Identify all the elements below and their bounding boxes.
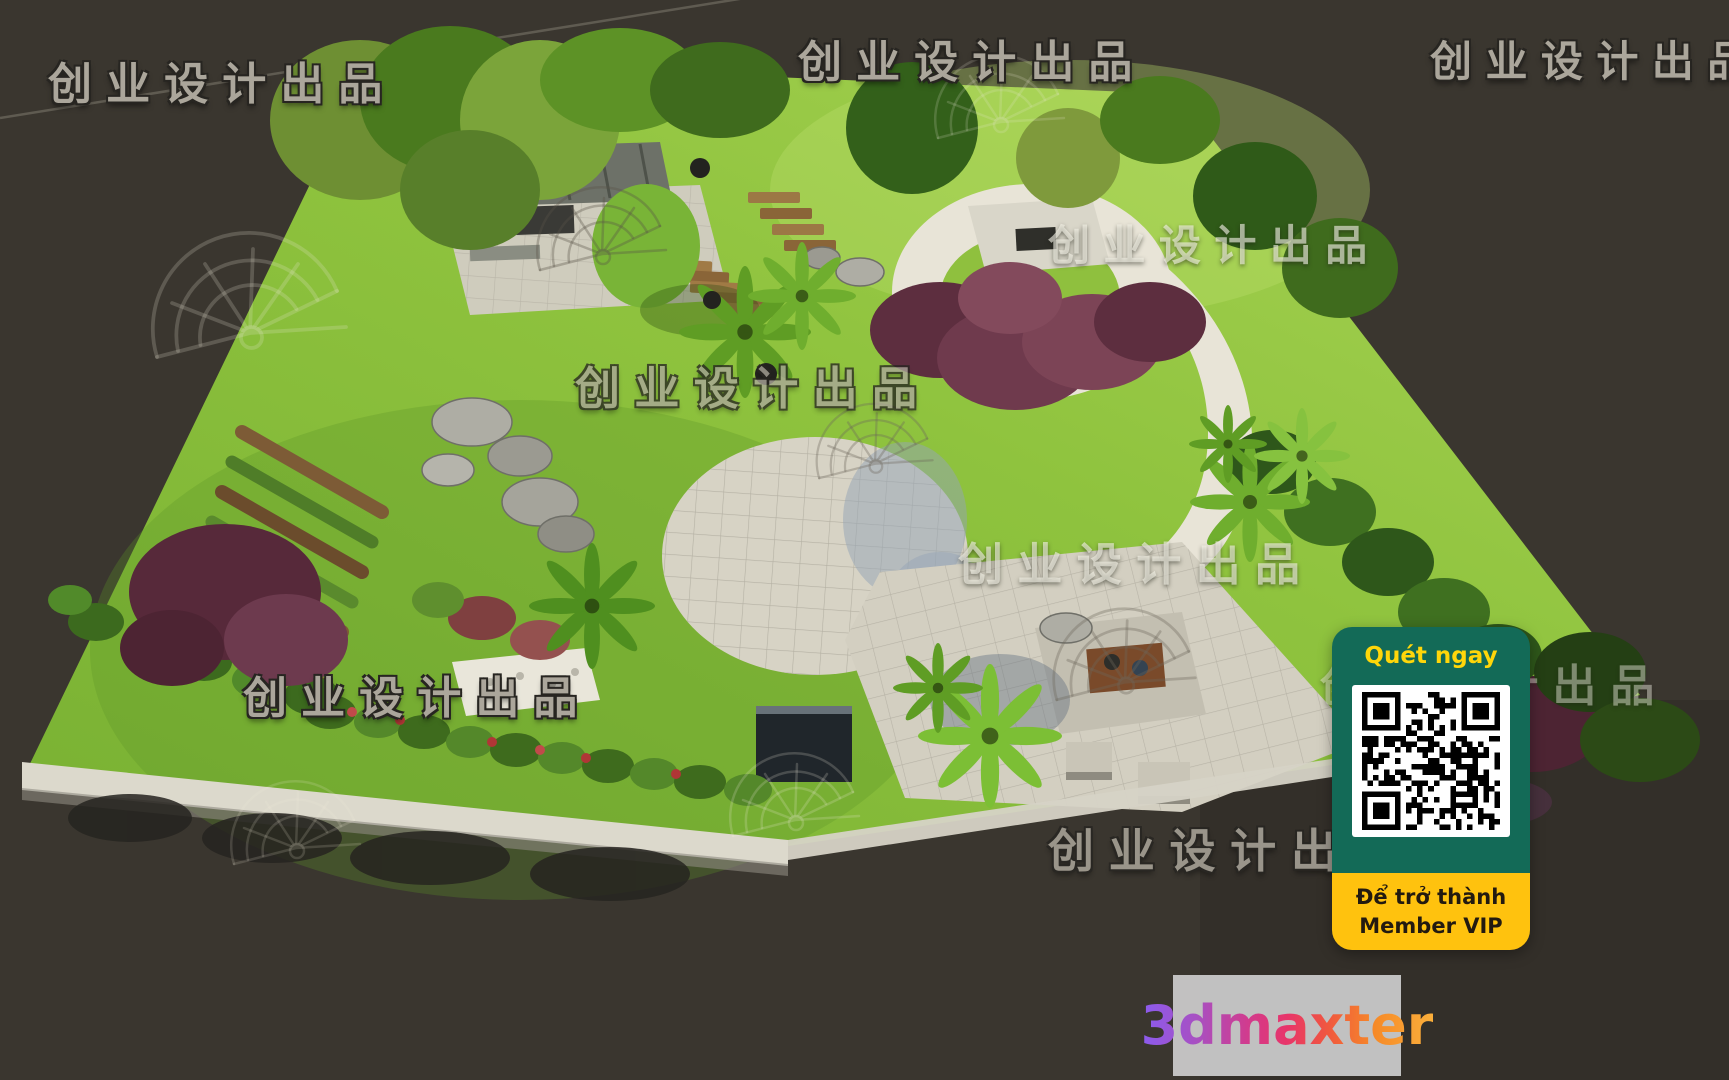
qr-code — [1352, 685, 1510, 837]
brand-logo-text: 3dmaxter — [1141, 994, 1434, 1057]
watermark-text: 创业设计出品 — [798, 26, 1146, 90]
watermark-text: 创业设计出品 — [48, 48, 396, 112]
watermark-text: 创业设计出品 — [1430, 28, 1729, 89]
scan-now-label: Quét ngay — [1364, 643, 1497, 669]
planter-pot — [703, 291, 721, 309]
qr-badge-green-panel: Quét ngay — [1332, 627, 1530, 873]
member-vip-line1: Để trở thành — [1356, 883, 1506, 911]
vip-qr-badge: Quét ngay Để trở thành Member VIP — [1332, 627, 1530, 950]
brand-logo-panel: 3dmaxter — [1173, 975, 1401, 1076]
qr-badge-yellow-panel: Để trở thành Member VIP — [1332, 873, 1530, 950]
watermark-text: 创业设计出品 — [958, 528, 1314, 593]
planter-pot — [690, 158, 710, 178]
garden-render-image: 创业设计出品 创业设计出品 创业设计出品 创业设计出品 创业设计出品 创业设计出… — [0, 0, 1729, 1080]
member-vip-line2: Member VIP — [1359, 912, 1502, 940]
watermark-text: 创业设计出品 — [243, 662, 591, 726]
watermark-text: 创业设计出品 — [575, 352, 931, 417]
watermark-text: 创业设计出品 — [1048, 212, 1381, 273]
